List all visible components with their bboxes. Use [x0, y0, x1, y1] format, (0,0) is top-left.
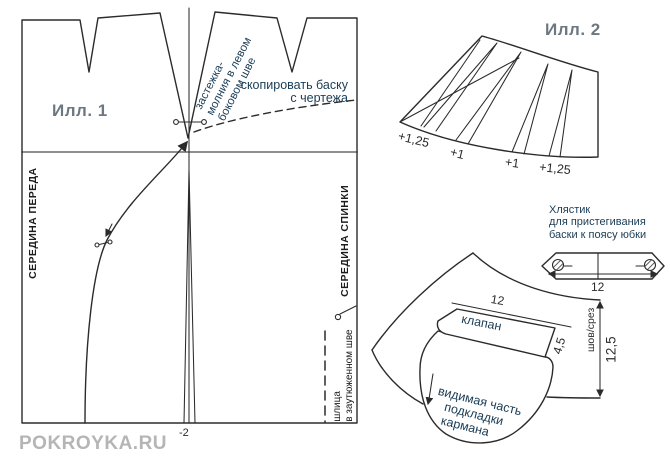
- seam-cut-label: шов/срез: [586, 302, 598, 358]
- tab-note: Хлястик для пристегивания баски к поясу …: [549, 204, 646, 241]
- illustration-2-title: Илл. 2: [545, 20, 601, 39]
- tab-width-value: 12: [591, 281, 604, 294]
- center-back-label: СЕРЕДИНА СПИНКИ: [340, 193, 352, 297]
- fan-internal-lines: [400, 40, 519, 126]
- band-hem-left: [372, 350, 423, 404]
- band-hem-right: [547, 397, 600, 398]
- pocket-depth-value: 12,5: [603, 336, 618, 364]
- site-watermark: POKROYKA.RU: [19, 433, 167, 454]
- ill1-skirt-draft: [22, 8, 357, 423]
- tab-note-line3: баски к поясу юбки: [549, 229, 646, 241]
- hem-adjust-value: -2: [179, 427, 189, 439]
- zipper-mark-top: [174, 120, 207, 125]
- buttonhole-right: [645, 260, 656, 271]
- buttonhole-left: [553, 260, 564, 271]
- zipper-mark-side-seam: [95, 240, 112, 247]
- basque-curve-arrow: [106, 224, 112, 236]
- vent-note-line2: в заутюженном шве: [344, 320, 356, 422]
- sewing-pattern-sheet: Илл. 1 застежка- молния в левом боковом …: [0, 0, 670, 461]
- basque-curve: [85, 142, 187, 423]
- vent-note-line1: шлица: [332, 320, 344, 422]
- spread-amount-3: +1: [504, 155, 520, 171]
- vent-notch-mark: [335, 306, 356, 320]
- tab-note-line1: Хлястик: [549, 204, 646, 216]
- copy-basque-note: скопировать баску с чертежа: [228, 79, 348, 105]
- fan-slash-wedges: [424, 43, 572, 157]
- flap-width-value: 12: [490, 293, 505, 309]
- tab-diagram: [542, 253, 664, 279]
- tab-note-line2: для пристегивания: [549, 216, 646, 228]
- vent-note: шлица в заутюженном шве: [332, 320, 356, 422]
- copy-basque-line1: скопировать баску: [228, 79, 348, 92]
- illustration-1-title: Илл. 1: [52, 101, 108, 120]
- copy-basque-line2: с чертежа: [228, 92, 348, 105]
- center-front-label: СЕРЕДИНА ПЕРЕДА: [28, 175, 40, 279]
